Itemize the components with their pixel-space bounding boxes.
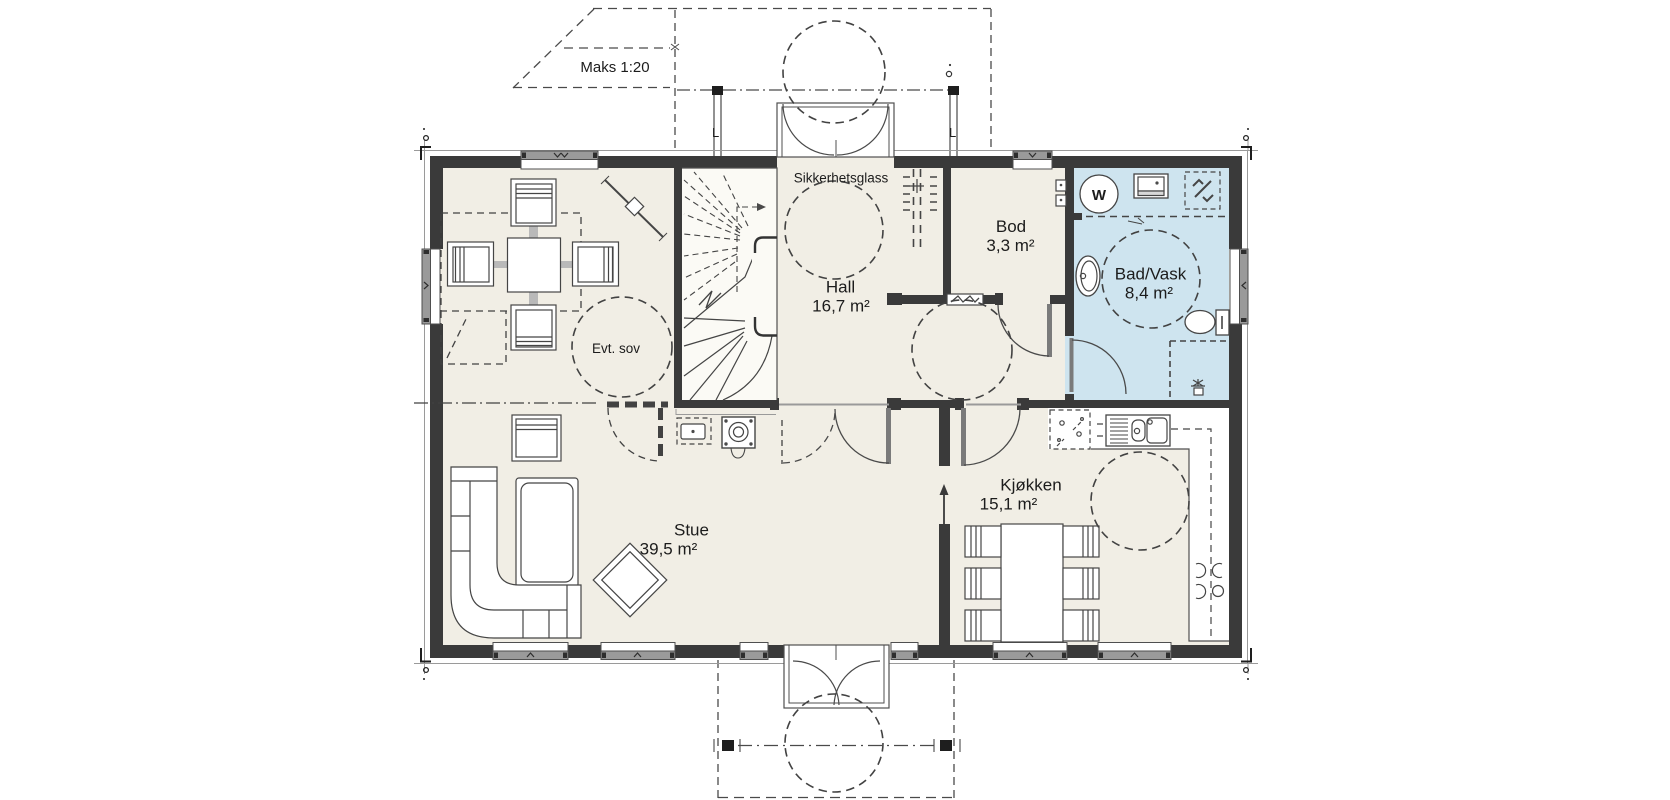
svg-text:Evt. sov: Evt. sov (592, 341, 640, 356)
svg-text:Maks 1:20: Maks 1:20 (580, 59, 649, 76)
svg-text:L: L (949, 125, 956, 140)
svg-text:Hall: Hall (826, 278, 855, 297)
svg-text:L: L (712, 125, 719, 140)
svg-text:16,7 m²: 16,7 m² (812, 297, 870, 316)
svg-text:Bod: Bod (996, 217, 1026, 236)
svg-text:Bad/Vask: Bad/Vask (1115, 265, 1187, 284)
svg-text:Stue: Stue (674, 521, 709, 540)
svg-text:Sikkerhetsglass: Sikkerhetsglass (794, 171, 889, 186)
svg-text:3,3 m²: 3,3 m² (986, 236, 1035, 255)
svg-text:39,5 m²: 39,5 m² (640, 540, 698, 559)
svg-text:15,1 m²: 15,1 m² (980, 495, 1038, 514)
svg-text:Kjøkken: Kjøkken (1000, 476, 1061, 495)
svg-text:W: W (1092, 187, 1107, 204)
svg-text:8,4 m²: 8,4 m² (1125, 284, 1174, 303)
